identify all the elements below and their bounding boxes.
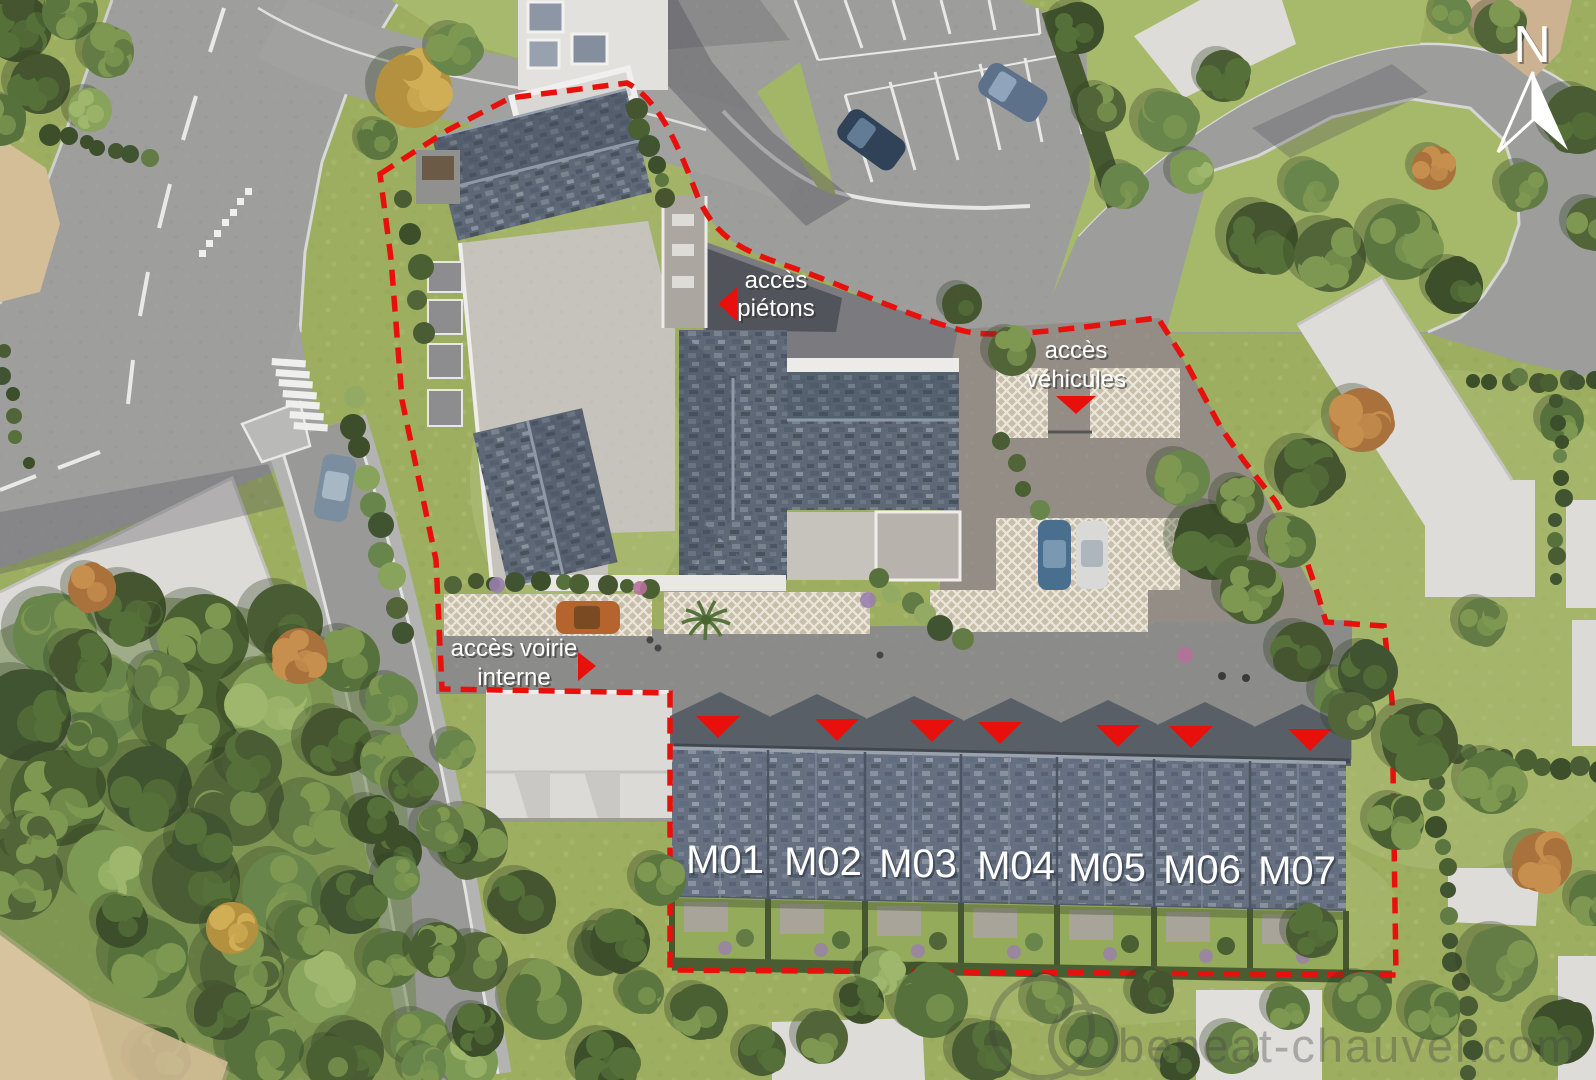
svg-text:N: N — [1513, 16, 1551, 74]
svg-text:M01: M01 — [686, 838, 764, 882]
svg-text:M02: M02 — [784, 840, 862, 884]
svg-text:accès: accès — [1045, 337, 1108, 364]
svg-text:interne: interne — [477, 664, 550, 691]
svg-text:accès: accès — [745, 267, 808, 294]
svg-text:M05: M05 — [1068, 846, 1146, 890]
svg-text:M04: M04 — [977, 844, 1055, 888]
svg-text:M03: M03 — [879, 842, 957, 886]
svg-text:beneat-chauvel.com: beneat-chauvel.com — [1118, 1019, 1577, 1072]
svg-text:accès voirie: accès voirie — [451, 635, 578, 662]
svg-text:piétons: piétons — [737, 295, 814, 322]
svg-text:M06: M06 — [1163, 848, 1241, 892]
svg-text:véhicules: véhicules — [1026, 366, 1126, 393]
svg-text:M07: M07 — [1258, 849, 1336, 893]
